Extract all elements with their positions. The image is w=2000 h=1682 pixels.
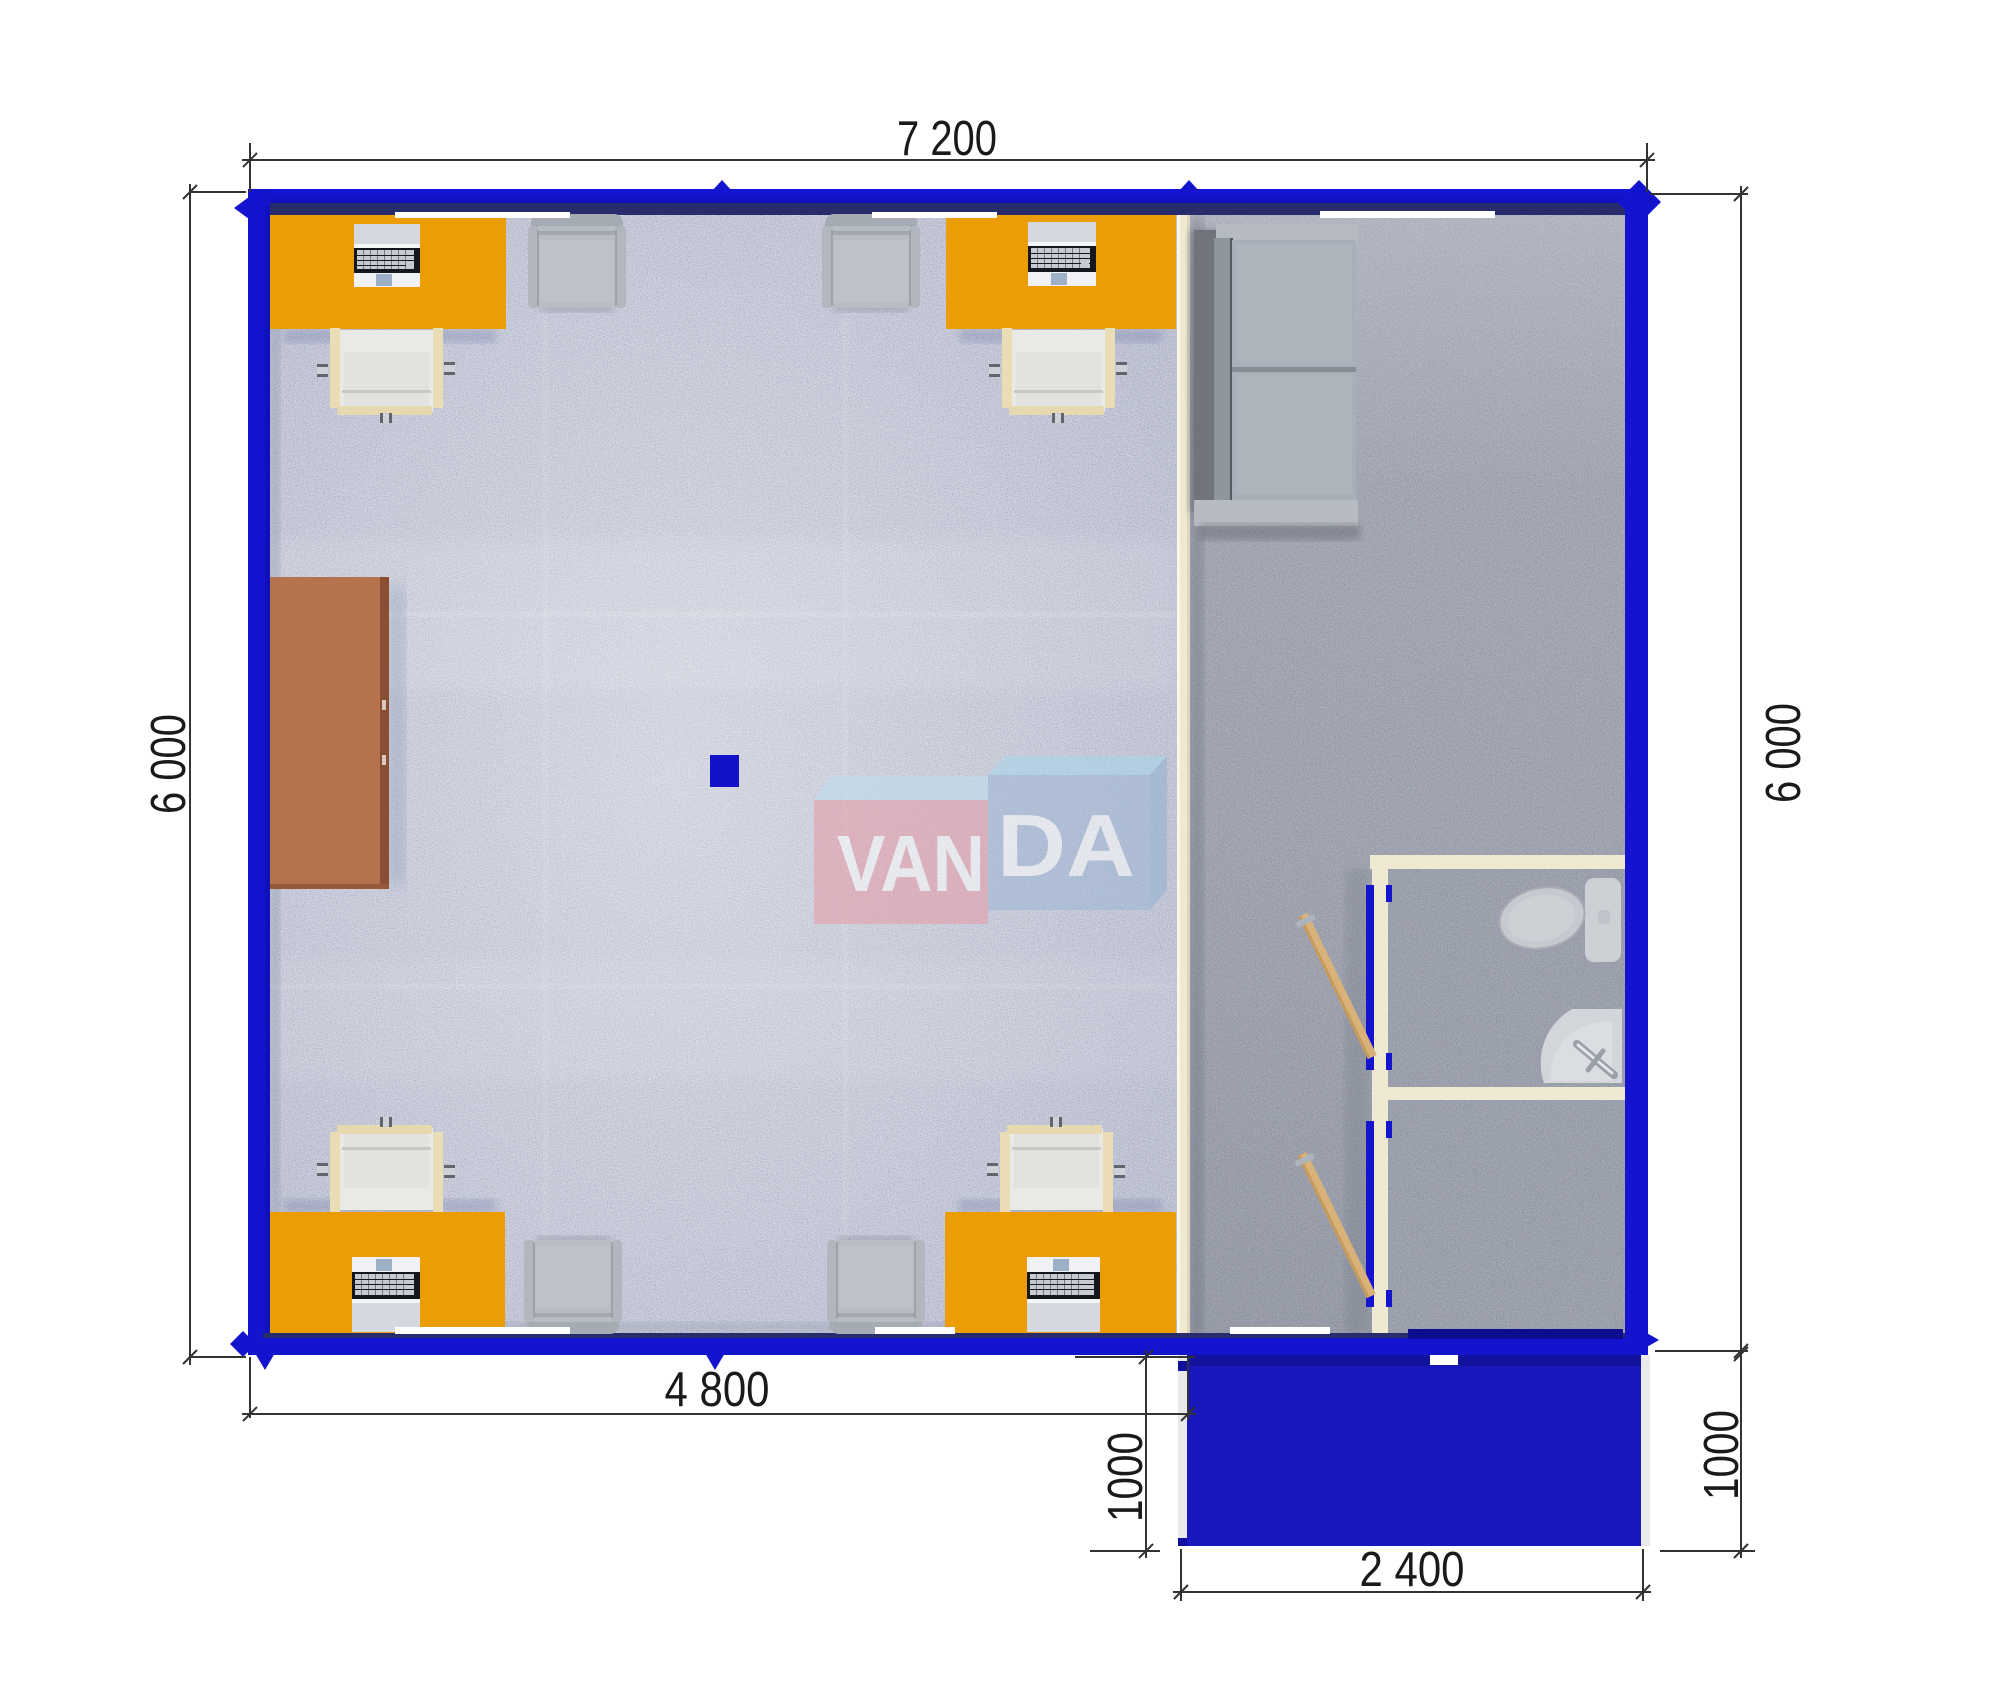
svg-text:7 200: 7 200 [897,112,997,166]
svg-text:1000: 1000 [1099,1432,1153,1522]
svg-text:2 400: 2 400 [1360,1543,1465,1597]
svg-text:1000: 1000 [1695,1410,1749,1500]
svg-text:VAN: VAN [837,819,985,908]
svg-text:6 000: 6 000 [142,714,196,814]
svg-text:4 800: 4 800 [665,1363,770,1417]
svg-text:6 000: 6 000 [1757,703,1811,803]
svg-text:DA: DA [997,796,1135,895]
